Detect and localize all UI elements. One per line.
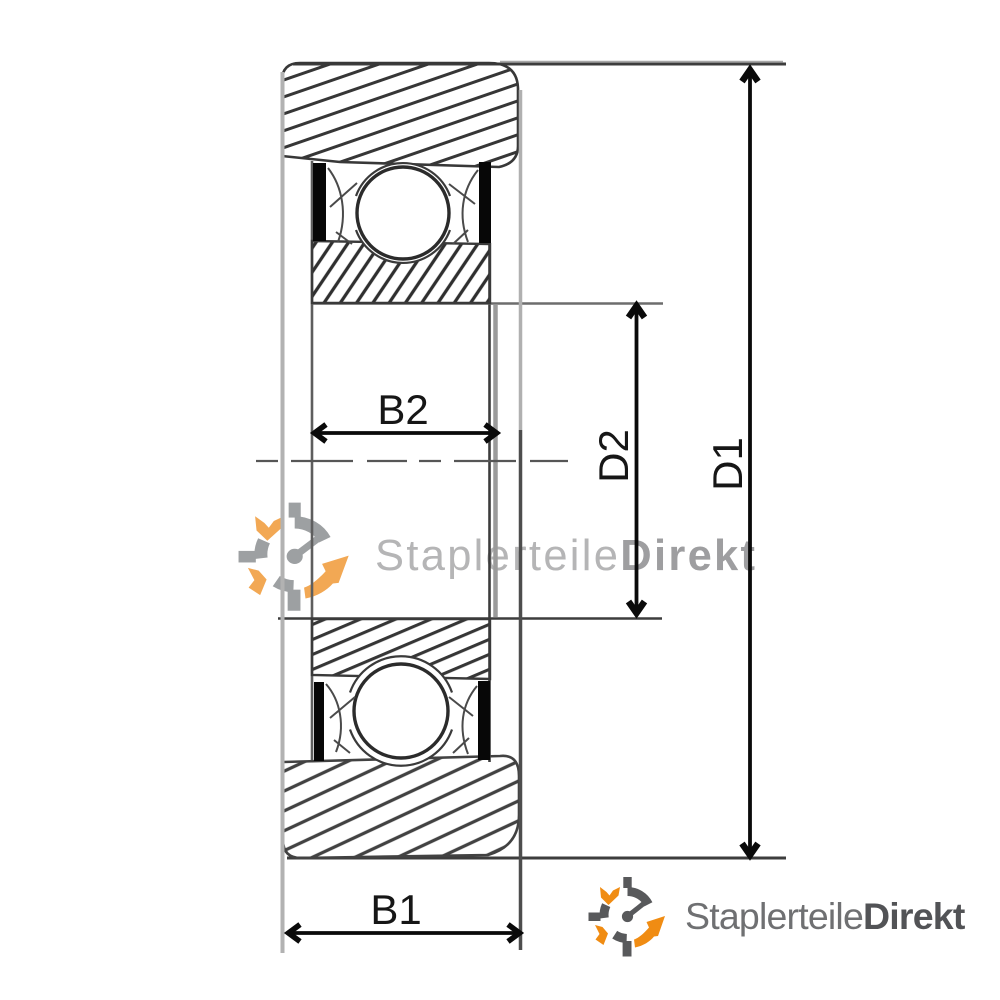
- svg-text:StaplerteileDirekt: StaplerteileDirekt: [375, 532, 757, 580]
- svg-text:StaplerteileDirekt: StaplerteileDirekt: [685, 895, 966, 937]
- svg-text:D2: D2: [590, 429, 637, 483]
- svg-text:B1: B1: [370, 886, 421, 933]
- svg-text:D1: D1: [704, 437, 751, 491]
- svg-text:B2: B2: [377, 386, 428, 433]
